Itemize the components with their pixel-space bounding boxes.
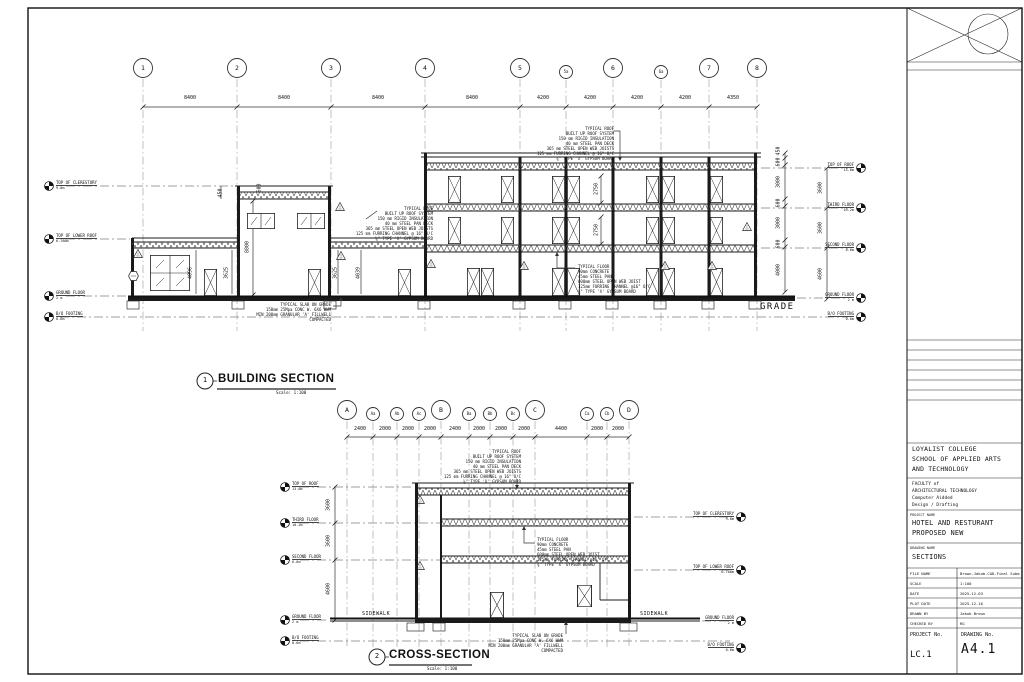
checked-by-label: CHECKED BY — [910, 622, 933, 626]
door-symbol — [552, 217, 564, 243]
datum-icon — [736, 512, 746, 522]
faculty-line: Design / Drafting — [912, 503, 958, 508]
level-marker: B/O FOOTING0.6m — [676, 643, 746, 653]
door-symbol — [710, 176, 722, 202]
grid-bubble: B — [431, 407, 451, 414]
dim-label: 4350 — [713, 96, 753, 101]
datum-icon — [44, 234, 54, 244]
datum-icon — [856, 243, 866, 253]
faculty-line: Computer Aidded — [912, 496, 953, 501]
dim-label: 4200 — [665, 96, 705, 101]
sidewalk-label: SIDEWALK — [362, 611, 390, 617]
dim-label: 3600 — [819, 182, 824, 194]
datum-icon — [280, 518, 290, 528]
grid-bubble: 7 — [699, 65, 719, 72]
cross-section-linework — [330, 483, 700, 621]
grid-bubble: 1 — [133, 65, 153, 72]
datum-icon — [736, 565, 746, 575]
drawn-by-label: DRAWN BY — [910, 612, 928, 616]
level-marker: TOP OF CLERESTORY9.8m — [676, 512, 746, 522]
section-number: 1 — [197, 377, 213, 384]
org-name-line: AND TECHNOLOGY — [912, 466, 969, 473]
plot-date-value: 2025-12-16 — [960, 602, 983, 606]
datum-icon — [856, 293, 866, 303]
drawing-name-label: DRAWING NAME — [910, 546, 935, 550]
project-no-value: LC.1 — [910, 650, 932, 660]
door-symbol — [662, 176, 674, 202]
level-elevation: 0.6m — [56, 317, 83, 321]
detail-marker-icon — [743, 222, 752, 230]
section-title: CROSS-SECTION — [389, 649, 490, 661]
dim-label: 4600 — [819, 268, 824, 280]
grid-bubble: D — [619, 407, 639, 414]
dim-label: 8400 — [170, 96, 210, 101]
dim-label: 600 — [777, 239, 782, 248]
dim-label: 600 — [777, 198, 782, 207]
dim-label: 4600 — [327, 583, 332, 595]
door-symbol — [448, 176, 460, 202]
file-name-value: Brown-Jakob-CAD-Final Subm — [960, 572, 1019, 576]
dim-label: 600 — [258, 183, 263, 192]
grade-label: GRADE — [760, 302, 795, 312]
door-symbol — [467, 268, 479, 295]
datum-icon — [44, 291, 54, 301]
grid-bubble: 5a — [558, 70, 574, 74]
datum-icon — [280, 555, 290, 565]
level-marker: TOP OF LOWER ROOF6.780m — [44, 234, 97, 244]
typical-roof-note: TYPICAL ROOF BUILT UP ROOF SYSTEM 150 mm… — [333, 206, 433, 241]
level-marker: TOP OF CLERESTORY9.8m — [44, 181, 97, 191]
level-elevation: 2 m — [705, 621, 734, 625]
level-marker: TOP OF ROOF13.8m — [280, 482, 319, 492]
level-elevation: 6.780m — [693, 570, 734, 574]
dim-label: 3625 — [334, 267, 339, 279]
level-elevation: 10.2m — [292, 523, 319, 527]
detail-marker-icon — [134, 249, 143, 257]
level-marker: THIRD FLOOR10.2m — [796, 203, 866, 213]
plot-date-label: PLOT DATE — [910, 602, 931, 606]
grid-bubble: Ab — [389, 412, 405, 416]
drawn-by-value: Jakob Brown — [960, 612, 985, 616]
level-elevation: 9.8m — [693, 517, 734, 521]
level-marker: GROUND FLOOR2 m — [280, 615, 321, 625]
datum-icon — [856, 312, 866, 322]
level-elevation: 0.6m — [292, 641, 319, 645]
door-symbol — [662, 217, 674, 243]
grid-bubble: Cb — [599, 412, 615, 416]
typical-slab-note: TYPICAL SLAB ON GRADE 150mm 25Mpa CONC W… — [231, 302, 331, 322]
level-elevation: 6.6m — [825, 248, 854, 252]
level-marker: THIRD FLOOR10.2m — [280, 518, 319, 528]
level-marker: B/O FOOTING0.6m — [796, 312, 866, 322]
dim-label: 4200 — [523, 96, 563, 101]
level-marker: SECOND FLOOR6.6m — [280, 555, 321, 565]
window-symbol — [150, 255, 190, 291]
level-marker: TOP OF ROOF13.8m — [796, 163, 866, 173]
datum-icon — [280, 615, 290, 625]
level-elevation: 2 m — [56, 296, 85, 300]
grid-bubble: Bb — [482, 412, 498, 416]
door-symbol — [501, 217, 513, 243]
section-scale: Scale: 1:100 — [427, 666, 457, 671]
grid-bubble: 6a — [653, 70, 669, 74]
level-elevation: 0.6m — [828, 317, 855, 321]
level-elevation: 2 m — [825, 298, 854, 302]
level-elevation: 2 m — [292, 620, 321, 624]
sidewalk-label: SIDEWALK — [640, 611, 668, 617]
door-symbol — [448, 217, 460, 243]
dim-label: 4000 — [777, 264, 782, 276]
dim-label: 3000 — [777, 176, 782, 188]
grid-bubble: Ac — [411, 412, 427, 416]
grid-bubble: 5 — [510, 65, 530, 72]
datum-icon — [856, 163, 866, 173]
level-elevation: 10.2m — [828, 208, 855, 212]
level-elevation: 6.780m — [56, 239, 97, 243]
dim-label: 450 — [777, 146, 782, 155]
dim-label: 3600 — [819, 222, 824, 234]
door-symbol — [552, 176, 564, 202]
datum-icon — [856, 203, 866, 213]
grid-bubble: 2 — [227, 65, 247, 72]
grid-bubble: 4 — [415, 65, 435, 72]
org-name-line: LOYALIST COLLEGE — [912, 446, 977, 453]
grid-bubble: Ca — [579, 412, 595, 416]
dim-label: 3625 — [225, 267, 230, 279]
level-marker: TOP OF LOWER ROOF6.780m — [676, 565, 746, 575]
datum-icon — [280, 636, 290, 646]
door-symbol — [490, 592, 503, 617]
sheet-border — [28, 8, 1022, 674]
faculty-line: ARCHITECTURAL TECHNOLOGY — [912, 489, 977, 494]
level-elevation: 6.6m — [292, 560, 321, 564]
detail-marker-icon — [427, 259, 436, 267]
dimension-lines — [143, 107, 827, 620]
window-symbol — [297, 213, 324, 229]
dim-label: 3000 — [777, 217, 782, 229]
level-marker: SECOND FLOOR6.6m — [796, 243, 866, 253]
dim-label: 600 — [777, 157, 782, 166]
datum-icon — [44, 312, 54, 322]
project-name-line: PROPOSED NEW — [912, 530, 964, 538]
door-symbol — [567, 217, 579, 243]
typical-roof-note: TYPICAL ROOF BUILT UP ROOF SYSTEM 150 mm… — [514, 126, 614, 161]
typical-roof-note: TYPICAL ROOF BUILT UP ROOF SYSTEM 150 mm… — [421, 449, 521, 484]
level-marker: B/O FOOTING0.6m — [280, 636, 319, 646]
dim-label: 8400 — [264, 96, 304, 101]
drawing-no-value: A4.1 — [961, 643, 996, 658]
level-elevation: 9.8m — [56, 186, 97, 190]
level-marker: GROUND FLOOR2 m — [676, 616, 746, 626]
door-symbol — [398, 269, 410, 295]
grid-bubble: Bc — [505, 412, 521, 416]
level-elevation: 0.6m — [708, 648, 735, 652]
project-name-label: PROJECT NAME — [910, 513, 935, 517]
org-name-line: SCHOOL OF APPLIED ARTS — [912, 456, 1001, 463]
grid-bubble: 3 — [321, 65, 341, 72]
dim-label: 4200 — [570, 96, 610, 101]
dim-label: 8800 — [246, 241, 251, 253]
drawing-no-label: DRAWING No. — [961, 633, 994, 639]
level-marker: GROUND FLOOR2 m — [44, 291, 85, 301]
wall-type-icon — [129, 272, 139, 281]
dim-label: 8400 — [358, 96, 398, 101]
datum-icon — [44, 181, 54, 191]
file-name-label: FILE NAME — [910, 572, 931, 576]
section-title: BUILDING SECTION — [218, 373, 334, 385]
window-symbol — [247, 213, 274, 229]
door-symbol — [481, 268, 493, 295]
grid-bubble: 8 — [747, 65, 767, 72]
door-symbol — [646, 217, 658, 243]
dim-label: 3600 — [327, 535, 332, 547]
door-symbol — [646, 176, 658, 202]
drawing-name: SECTIONS — [912, 554, 946, 562]
dim-label: 2000 — [603, 427, 633, 432]
scale-value: 1:100 — [960, 582, 971, 586]
section-number: 2 — [369, 653, 385, 660]
dim-label: 8400 — [452, 96, 492, 101]
typical-floor-note: TYPICAL FLOOR 90mm CONCRETE 45mm STEEL P… — [578, 264, 668, 294]
datum-icon — [736, 643, 746, 653]
dim-label: 2750 — [595, 224, 600, 236]
typical-floor-note: TYPICAL FLOOR 90mm CONCRETE 45mm STEEL P… — [537, 537, 627, 567]
faculty-line: FACULTY of — [912, 482, 939, 487]
grid-bubble: Aa — [365, 412, 381, 416]
grid-bubble: 6 — [603, 65, 623, 72]
drawing-linework — [0, 0, 1024, 682]
level-elevation: 13.8m — [828, 168, 855, 172]
dim-label: 4400 — [546, 427, 576, 432]
level-marker: B/O FOOTING0.6m — [44, 312, 83, 322]
dimension-ticks — [141, 105, 830, 623]
project-name-line: HOTEL AND RESTURANT — [912, 520, 994, 528]
grid-bubble: Ba — [461, 412, 477, 416]
datum-icon — [280, 482, 290, 492]
dim-label: 2000 — [509, 427, 539, 432]
door-symbol — [577, 585, 591, 606]
dim-label: 2750 — [595, 183, 600, 195]
door-symbol — [552, 268, 564, 295]
project-no-label: PROJECT No. — [910, 633, 943, 639]
datum-icon — [736, 616, 746, 626]
grid-bubble: C — [525, 407, 545, 414]
door-symbol — [710, 268, 722, 295]
door-symbol — [501, 176, 513, 202]
level-marker: GROUND FLOOR2 m — [796, 293, 866, 303]
door-symbol — [204, 269, 216, 295]
grid-bubble: A — [337, 407, 357, 414]
drawing-sheet: 1 2 3 4 5 5a 6 6a 7 8 8400 8400 8400 840… — [0, 0, 1024, 682]
dim-label: 3600 — [327, 499, 332, 511]
dim-label: 4039 — [357, 267, 362, 279]
dim-label: 450 — [219, 188, 224, 197]
level-elevation: 13.8m — [292, 487, 319, 491]
date-label: DATE — [910, 592, 919, 596]
checked-by-value: RG — [960, 622, 965, 626]
door-symbol — [710, 217, 722, 243]
dim-label: 4200 — [617, 96, 657, 101]
door-symbol — [567, 176, 579, 202]
door-symbol — [308, 269, 320, 295]
scale-label: SCALE — [910, 582, 921, 586]
dim-label: 4096 — [189, 267, 194, 279]
date-value: 2025-12-03 — [960, 592, 983, 596]
section-scale: Scale: 1:100 — [276, 390, 306, 395]
